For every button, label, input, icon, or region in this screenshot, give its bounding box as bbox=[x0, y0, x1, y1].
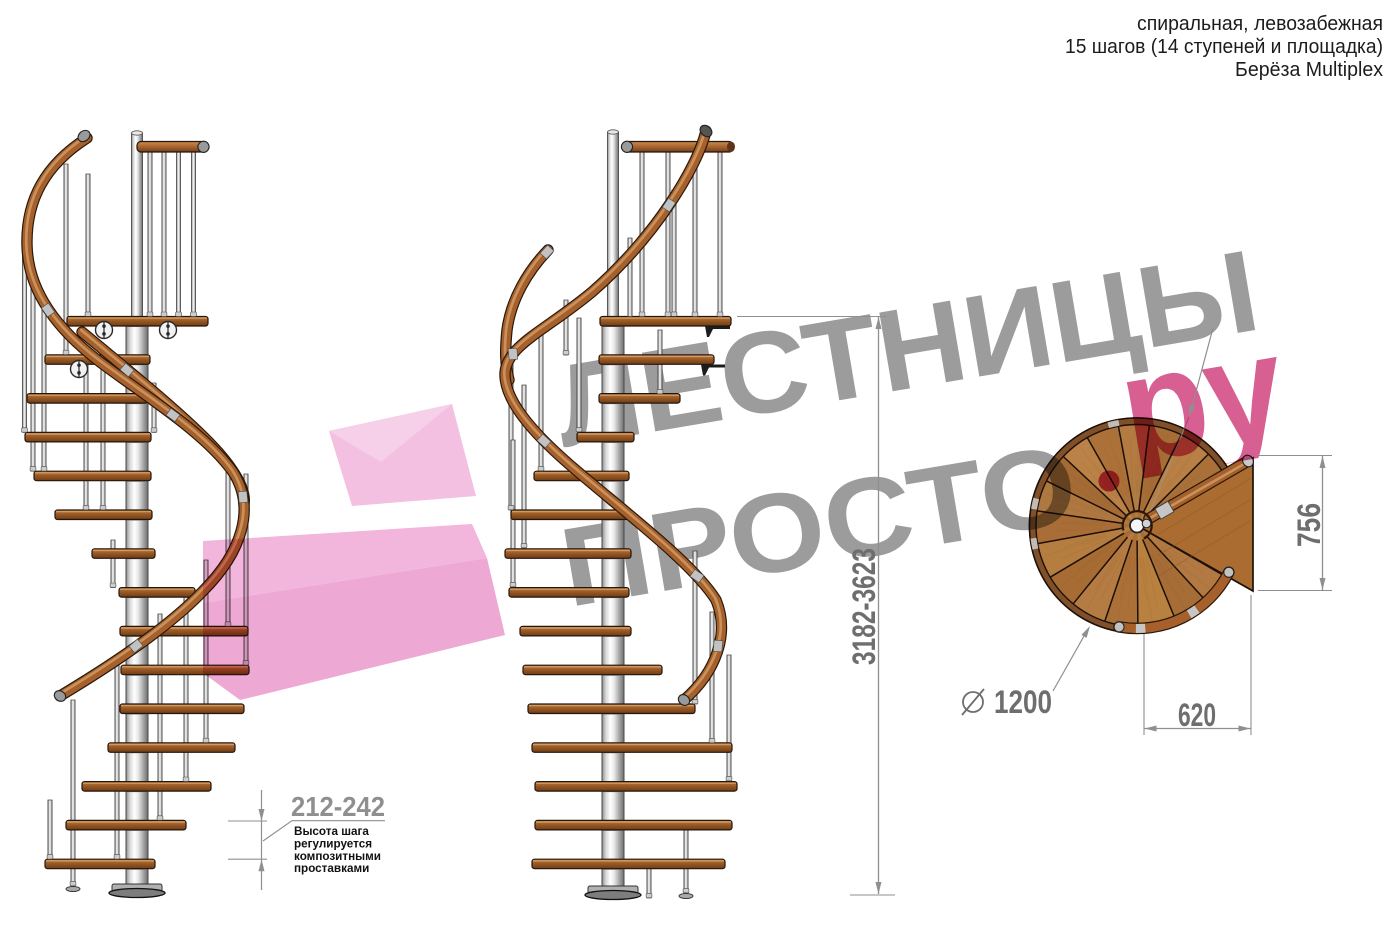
svg-text:спиральная, левозабежная: спиральная, левозабежная bbox=[1137, 13, 1383, 35]
svg-text:композитными: композитными bbox=[294, 850, 381, 863]
svg-text:ру: ру bbox=[1108, 301, 1296, 496]
svg-text:3182-3623: 3182-3623 bbox=[846, 548, 882, 665]
svg-text:проставками: проставками bbox=[294, 862, 369, 875]
svg-text:756: 756 bbox=[1291, 503, 1327, 547]
svg-text:212-242: 212-242 bbox=[291, 791, 385, 822]
svg-text:регулируется: регулируется bbox=[294, 837, 372, 850]
svg-text:1200: 1200 bbox=[994, 684, 1052, 720]
svg-text:Высота шага: Высота шага bbox=[294, 825, 369, 838]
svg-text:15 шагов (14 ступеней и площад: 15 шагов (14 ступеней и площадка) bbox=[1065, 36, 1383, 58]
svg-text:620: 620 bbox=[1178, 697, 1216, 733]
svg-text:Берёза Multiplex: Берёза Multiplex bbox=[1235, 59, 1383, 81]
